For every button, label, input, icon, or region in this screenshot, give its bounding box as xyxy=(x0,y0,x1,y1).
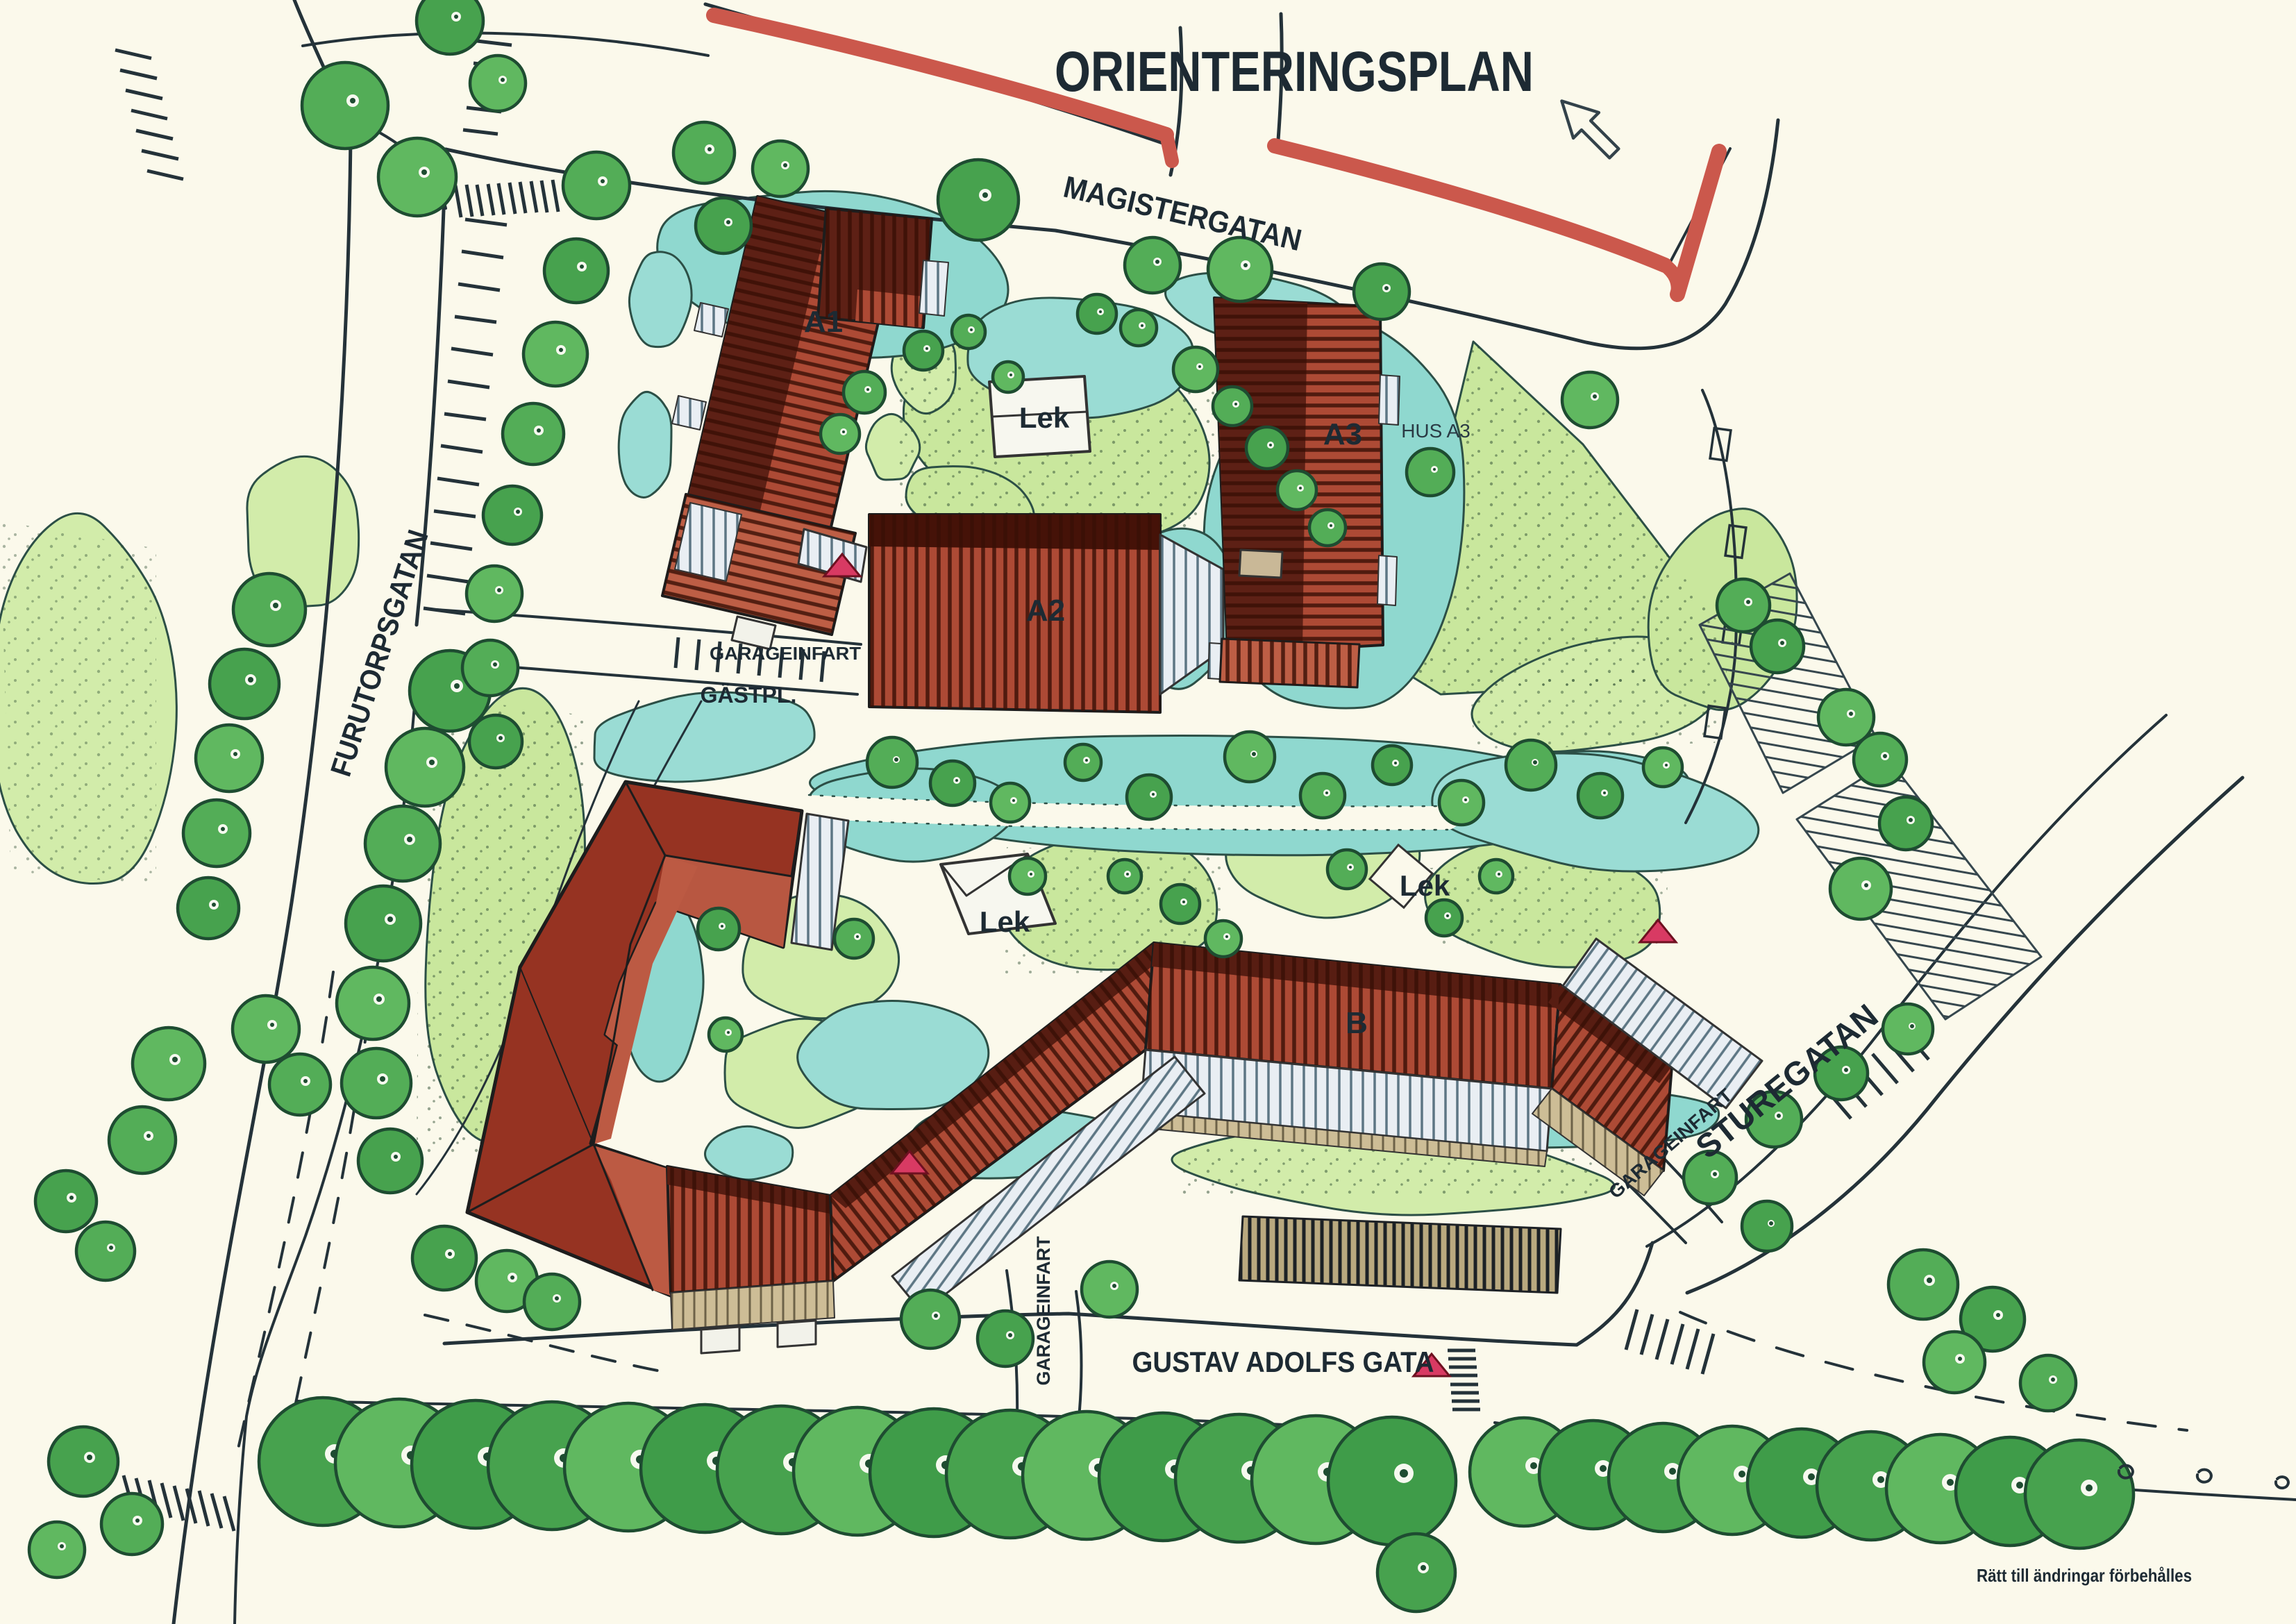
svg-text:Rätt till ändringar förbehålle: Rätt till ändringar förbehålles xyxy=(1977,1565,2192,1586)
svg-text:GARAGEINFART: GARAGEINFART xyxy=(710,643,861,664)
svg-text:B: B xyxy=(1346,1006,1368,1040)
svg-text:GÄSTPL.: GÄSTPL. xyxy=(701,683,797,708)
svg-text:Lek: Lek xyxy=(1019,401,1070,434)
svg-text:ORIENTERINGSPLAN: ORIENTERINGSPLAN xyxy=(1055,40,1534,103)
svg-text:GUSTAV ADOLFS GATA: GUSTAV ADOLFS GATA xyxy=(1132,1346,1434,1378)
svg-text:A2: A2 xyxy=(1026,594,1065,628)
svg-text:HUS A3: HUS A3 xyxy=(1401,420,1470,442)
svg-text:Lek: Lek xyxy=(980,905,1030,938)
svg-text:Lek: Lek xyxy=(1400,869,1450,902)
svg-text:A1: A1 xyxy=(804,305,843,339)
svg-text:GARAGEINFART: GARAGEINFART xyxy=(1033,1236,1054,1386)
svg-text:A3: A3 xyxy=(1323,417,1362,451)
